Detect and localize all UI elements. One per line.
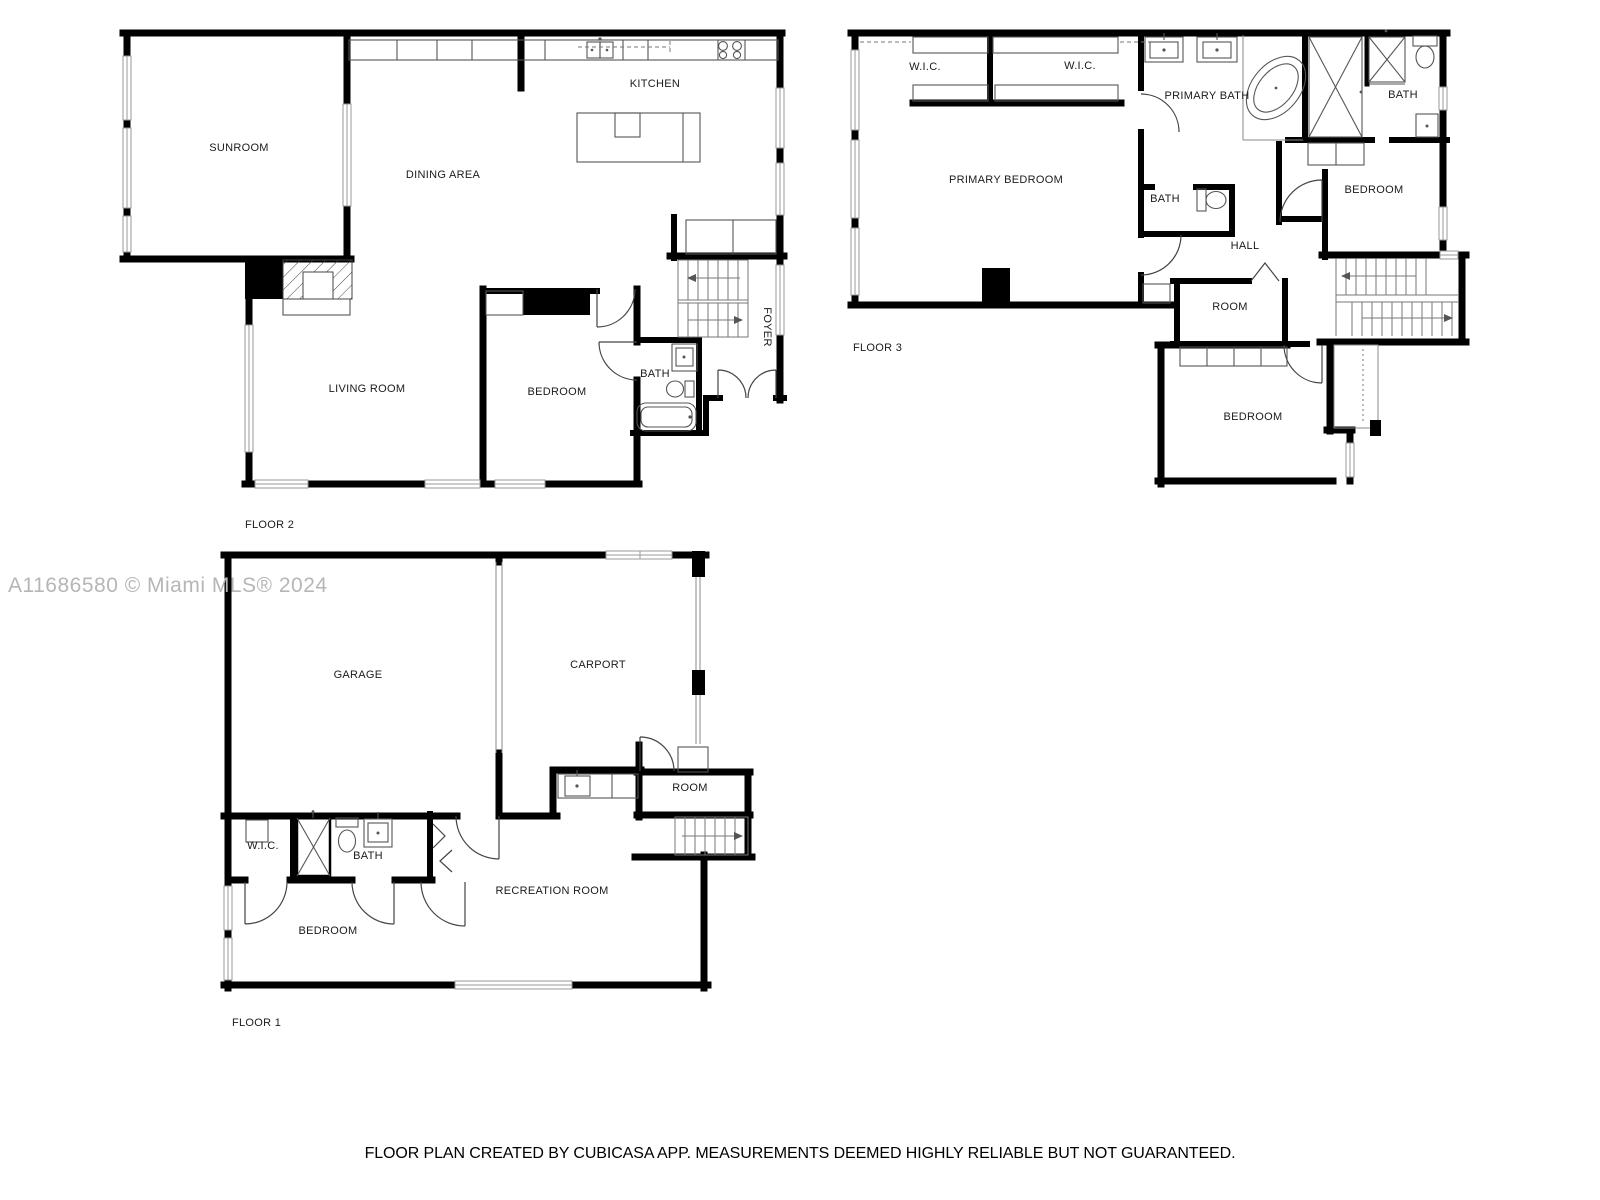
bath-fixtures-floor1 bbox=[336, 812, 452, 872]
balcony-strip bbox=[1334, 345, 1381, 436]
fireplace-wall-block bbox=[245, 260, 283, 299]
floor1-doors bbox=[245, 737, 674, 926]
staircase-floor1 bbox=[675, 817, 748, 855]
bedroom-closet-shelf bbox=[486, 291, 523, 315]
primary-bath-fixtures bbox=[1145, 33, 1362, 140]
room-label-garage: GARAGE bbox=[334, 669, 383, 681]
floor-3-label: FLOOR 3 bbox=[853, 342, 902, 354]
staircase-floor2 bbox=[678, 260, 748, 337]
room-label-room-f3: ROOM bbox=[1212, 301, 1247, 313]
staircase-floor3 bbox=[1336, 258, 1458, 336]
floor-2-plan: SUNROOM DINING AREA KITCHEN LIVING ROOM … bbox=[123, 33, 784, 531]
kitchen-counter bbox=[349, 37, 778, 60]
room-label-foyer: FOYER bbox=[761, 307, 773, 346]
room-label-living-room: LIVING ROOM bbox=[329, 383, 406, 395]
shower-floor1 bbox=[297, 810, 330, 876]
primary-bedroom-wall-stub bbox=[982, 268, 1010, 305]
room-label-wic-right: W.I.C. bbox=[1064, 60, 1096, 72]
room-label-carport: CARPORT bbox=[570, 659, 626, 671]
room-label-wic-left: W.I.C. bbox=[909, 61, 941, 73]
room-label-primary-bedroom: PRIMARY BEDROOM bbox=[949, 174, 1063, 186]
bath-top-right-fixtures bbox=[1360, 30, 1438, 137]
bath-small-fixtures bbox=[1197, 189, 1226, 211]
room-label-bedroom-f1: BEDROOM bbox=[299, 925, 358, 937]
room-label-bedroom-f2: BEDROOM bbox=[528, 386, 587, 398]
floorplan-page: SUNROOM DINING AREA KITCHEN LIVING ROOM … bbox=[0, 0, 1600, 1200]
room-label-dining-area: DINING AREA bbox=[406, 169, 481, 181]
floor-1-plan: GARAGE CARPORT ROOM W.I.C. BATH BEDROOM … bbox=[224, 551, 752, 1029]
room-label-bedroom-right: BEDROOM bbox=[1345, 184, 1404, 196]
mls-watermark: A11686580 © Miami MLS® 2024 bbox=[8, 574, 328, 598]
floor-1-label: FLOOR 1 bbox=[232, 1017, 281, 1029]
kitchen-island bbox=[577, 113, 700, 162]
room-label-bedroom-bottom: BEDROOM bbox=[1224, 411, 1283, 423]
room-label-bath-small: BATH bbox=[1150, 193, 1180, 205]
bath-fixtures-floor2 bbox=[637, 344, 697, 431]
carport-niche bbox=[678, 747, 708, 772]
carport-edge bbox=[692, 551, 705, 744]
floor3-windows bbox=[851, 50, 1458, 477]
room-label-wic-f1: W.I.C. bbox=[247, 840, 279, 852]
room-label-kitchen: KITCHEN bbox=[630, 78, 680, 90]
room-label-primary-bath: PRIMARY BATH bbox=[1165, 90, 1250, 102]
room-label-bath-f1: BATH bbox=[353, 850, 383, 862]
room-label-hall: HALL bbox=[1231, 240, 1260, 252]
room-label-recreation-room: RECREATION ROOM bbox=[495, 885, 608, 897]
floor-3-plan: W.I.C. W.I.C. PRIMARY BATH BATH PRIMARY … bbox=[851, 30, 1466, 484]
hall-nook bbox=[1143, 284, 1170, 303]
disclaimer-text: FLOOR PLAN CREATED BY CUBICASA APP. MEAS… bbox=[0, 1145, 1600, 1163]
foyer-closet bbox=[686, 220, 776, 254]
room-label-room-f1: ROOM bbox=[672, 782, 707, 794]
wic-shelves bbox=[860, 37, 1158, 101]
floor-2-label: FLOOR 2 bbox=[245, 519, 294, 531]
floor2-windows bbox=[123, 56, 784, 488]
room-label-bath-tr: BATH bbox=[1388, 89, 1418, 101]
room-label-bath-f2: BATH bbox=[640, 368, 670, 380]
stove bbox=[719, 42, 742, 59]
floorplan-canvas: SUNROOM DINING AREA KITCHEN LIVING ROOM … bbox=[0, 0, 1600, 1200]
wic-shelf-floor1 bbox=[246, 820, 268, 842]
kitchenette-counter bbox=[558, 770, 638, 798]
bedroom-closet-block bbox=[523, 289, 590, 315]
room-label-sunroom: SUNROOM bbox=[209, 142, 269, 154]
fireplace bbox=[283, 260, 352, 315]
